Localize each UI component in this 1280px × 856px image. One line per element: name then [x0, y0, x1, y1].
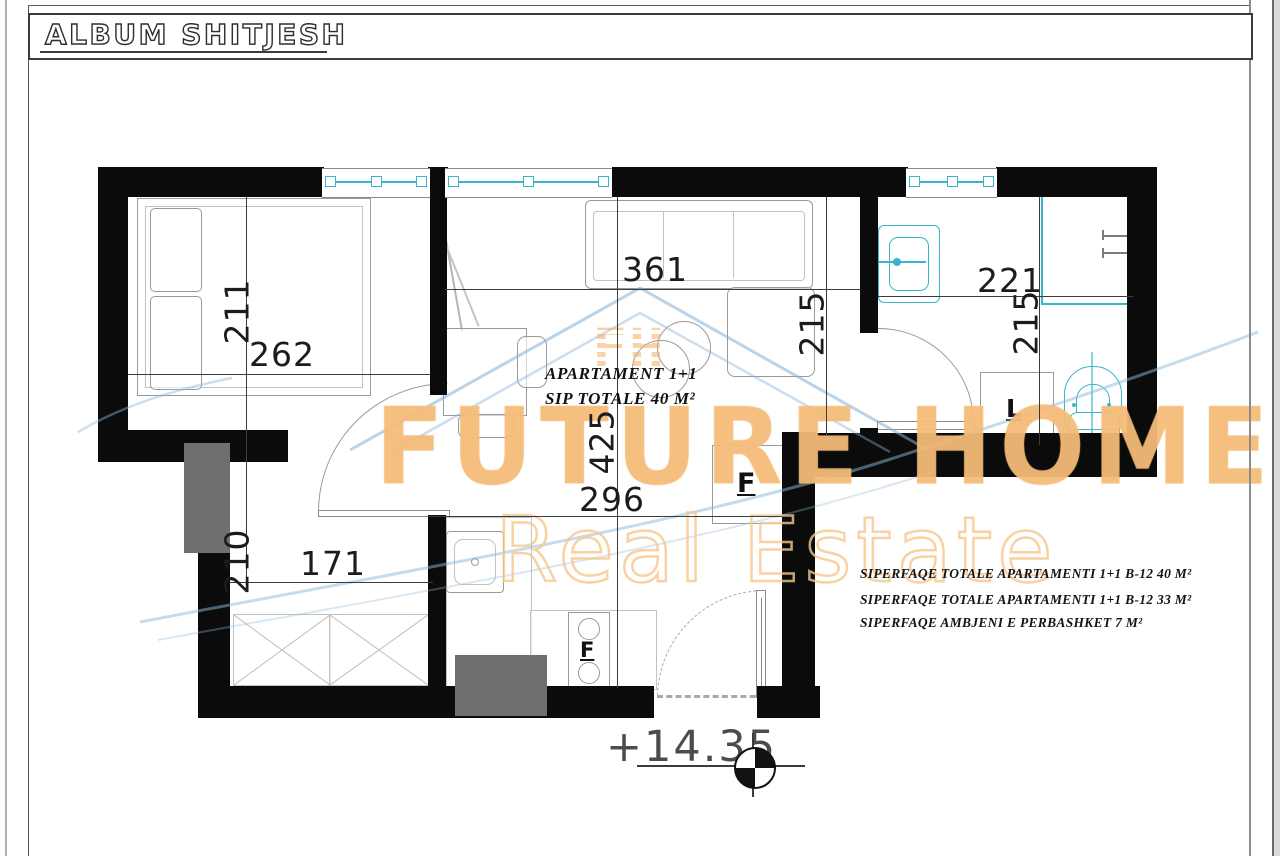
dimline-bedroom-horizontal — [128, 374, 430, 375]
area-summary-line: SIPERFAQE TOTALE APARTAMENTI 1+1 B-12 33… — [860, 592, 1191, 608]
wall-top-bedroom — [98, 167, 324, 197]
dim-living-depth: 425 — [586, 400, 619, 484]
wall-top-living — [612, 167, 908, 197]
dim-living-height: 215 — [796, 282, 829, 366]
window-handle-icon — [983, 176, 994, 187]
title-box: ALBUM SHITJESH — [28, 13, 1253, 60]
window-handle-icon — [371, 176, 382, 187]
apartment-type: APARTAMENT 1+1 — [545, 362, 697, 387]
window-handle-icon — [523, 176, 534, 187]
dim-hall-width: 171 — [288, 547, 378, 580]
window-handle-icon — [416, 176, 427, 187]
wall-bath-left — [860, 197, 878, 333]
wardrobe — [329, 614, 429, 686]
bed-pillow — [150, 208, 202, 292]
window-handle-icon — [325, 176, 336, 187]
shower-head-cap — [1102, 248, 1104, 258]
wall-bottom — [198, 686, 654, 718]
scan-margin-right — [1274, 0, 1280, 856]
shower-head-cap — [1102, 230, 1104, 240]
area-summary-line: SIPERFAQE TOTALE APARTAMENTI 1+1 B-12 40… — [860, 566, 1191, 582]
watermark-brand: FUTURE HOME — [375, 385, 1255, 509]
window-living — [445, 168, 612, 198]
dim-kitchen-width: 296 — [567, 483, 657, 516]
wardrobe — [233, 614, 331, 686]
scan-edge-left — [5, 0, 7, 856]
dim-bath-height: 215 — [1010, 281, 1043, 365]
window-handle-icon — [448, 176, 459, 187]
elevation-underline — [637, 765, 805, 767]
window-handle-icon — [598, 176, 609, 187]
shower-screen — [1041, 303, 1133, 305]
door-swing-arrow — [761, 598, 762, 690]
page-border-top — [28, 5, 1249, 6]
page-border-left — [28, 5, 29, 856]
wall-entry-foot — [757, 686, 820, 718]
sofa-cushion-divider — [733, 212, 734, 278]
stove-burner-icon — [578, 662, 600, 684]
window-handle-icon — [909, 176, 920, 187]
wall-bedroom-living — [430, 197, 447, 395]
apartment-label: APARTAMENT 1+1 SIP TOTALE 40 M² — [545, 362, 697, 411]
elevation-benchmark-icon — [734, 747, 776, 789]
wall-top-bath — [996, 167, 1157, 197]
kitchen-counter-block — [455, 655, 547, 716]
window-bath — [906, 168, 997, 198]
floorplan-page: ALBUM SHITJESH — [0, 0, 1280, 856]
window-bedroom — [322, 168, 430, 198]
wall-left-bedroom — [98, 167, 128, 440]
wall-hall-kitchen — [428, 515, 446, 718]
window-handle-icon — [947, 176, 958, 187]
desk-chair — [517, 336, 547, 388]
stove-label: F — [580, 638, 594, 662]
page-title: ALBUM SHITJESH — [45, 18, 347, 51]
dim-living-width: 361 — [610, 253, 700, 286]
page-border-right — [1249, 0, 1251, 856]
title-underline — [40, 51, 327, 53]
dim-bedroom-width: 262 — [232, 338, 332, 371]
entrance-door-swing — [657, 590, 765, 698]
stove-burner-icon — [578, 618, 600, 640]
bed-pillow — [150, 296, 202, 390]
sink-drain-icon — [471, 558, 479, 566]
dim-hall-height: 210 — [221, 520, 254, 604]
apartment-area: SIP TOTALE 40 M² — [545, 387, 697, 412]
area-summary-line: SIPERFAQE AMBJENI E PERBASHKET 7 M² — [860, 615, 1143, 631]
